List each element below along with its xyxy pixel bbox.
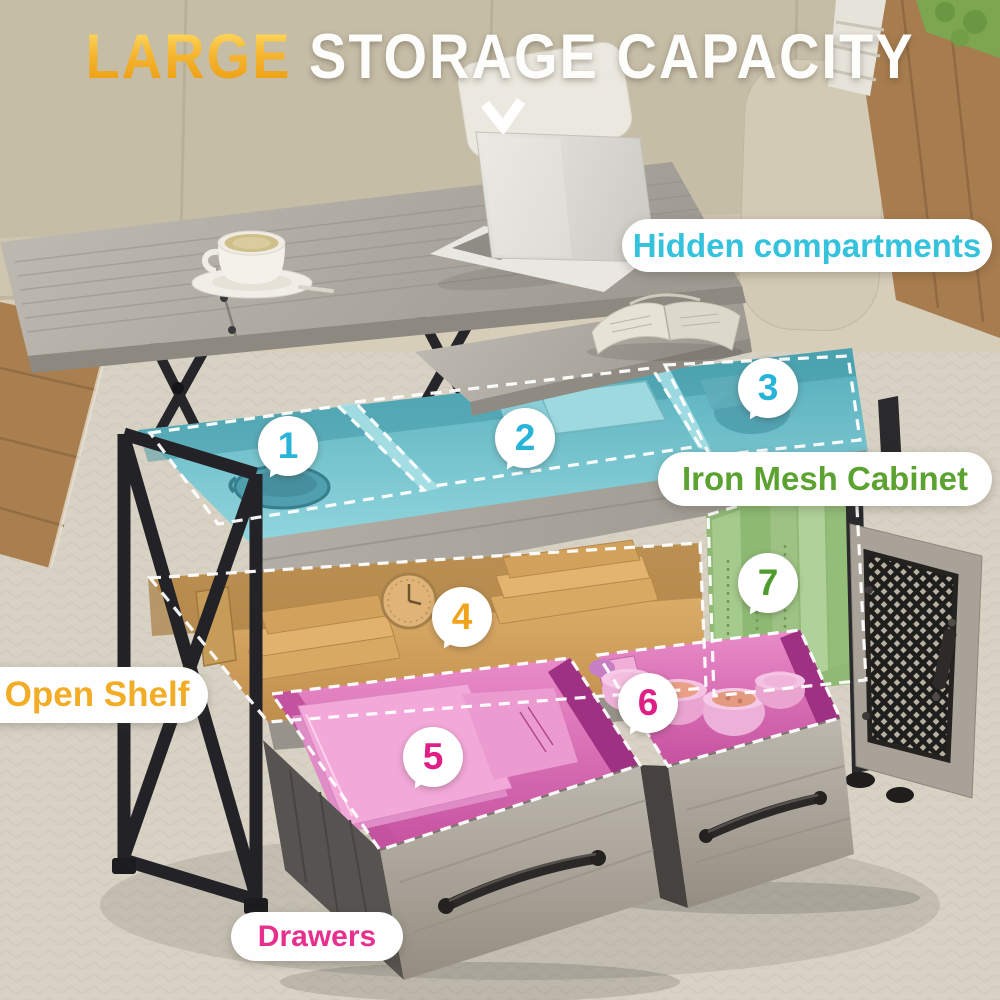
callout-iron-mesh-cabinet: Iron Mesh Cabinet — [658, 452, 992, 506]
product-annotation-image: LARGE STORAGE CAPACITY Hidden compartmen… — [0, 0, 1000, 1000]
marker-2: 2 — [495, 408, 555, 468]
marker-4: 4 — [432, 587, 492, 647]
callout-drawers: Drawers — [231, 912, 403, 961]
chevron-down-icon — [481, 98, 525, 134]
marker-3: 3 — [738, 358, 798, 418]
mesh-cabinet-door — [850, 524, 982, 798]
marker-1: 1 — [258, 416, 318, 476]
marker-5: 5 — [403, 727, 463, 787]
headline-highlight: LARGE — [85, 21, 291, 92]
callout-open-shelf: Open Shelf — [0, 667, 208, 723]
callout-hidden-compartments: Hidden compartments — [622, 219, 992, 272]
marker-6: 6 — [618, 673, 678, 733]
couch-armrest — [737, 58, 886, 333]
shelf-clock — [382, 574, 436, 628]
headline: LARGE STORAGE CAPACITY — [0, 20, 1000, 93]
marker-7: 7 — [738, 553, 798, 613]
headline-rest: STORAGE CAPACITY — [291, 21, 914, 92]
